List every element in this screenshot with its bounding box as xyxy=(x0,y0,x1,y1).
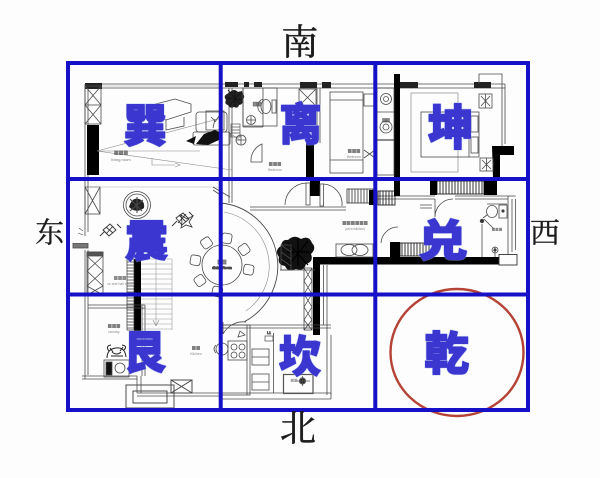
svg-text:L1: L1 xyxy=(267,331,271,335)
svg-text:living room: living room xyxy=(111,157,131,162)
svg-text:laundry: laundry xyxy=(108,330,119,334)
svg-text:Bedroom: Bedroom xyxy=(347,155,361,159)
svg-text:(art exhibition): (art exhibition) xyxy=(345,227,365,231)
svg-text:Kitchen: Kitchen xyxy=(190,352,201,356)
svg-text:Bedroom: Bedroom xyxy=(268,168,282,172)
svg-text:xx and hall room: xx and hall room xyxy=(107,282,133,286)
